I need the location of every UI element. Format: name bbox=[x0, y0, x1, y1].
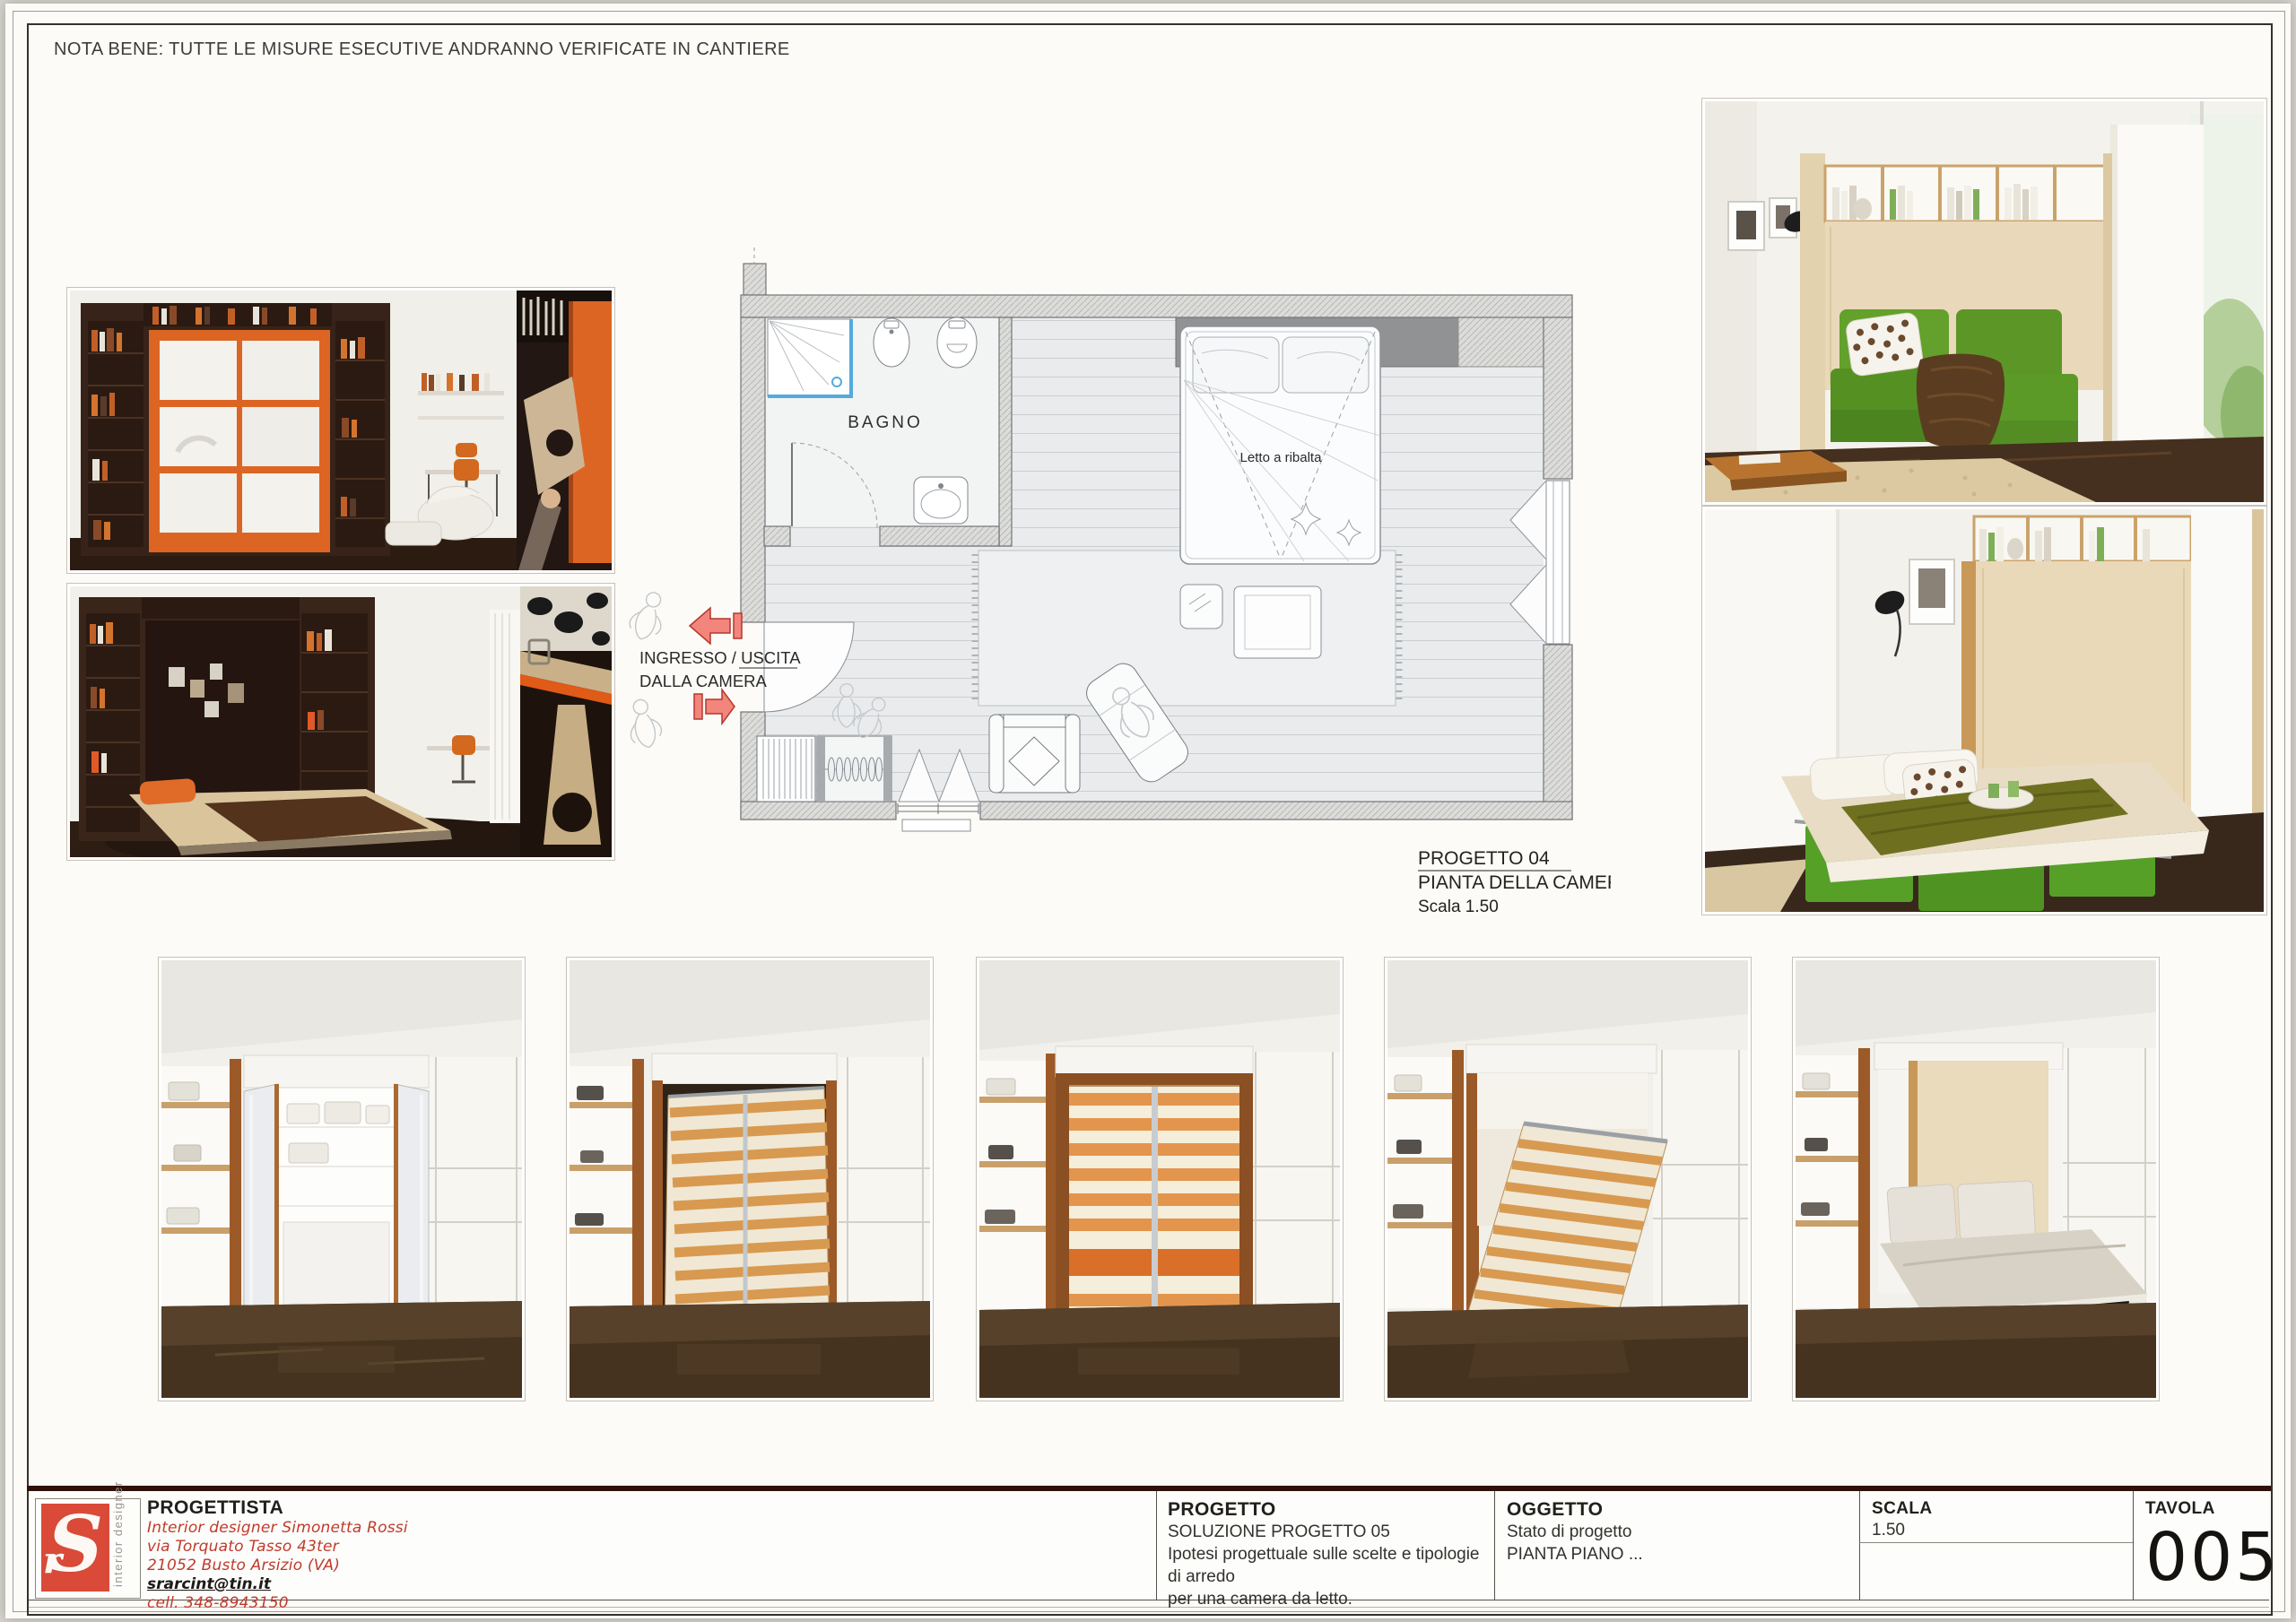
photo-bookcase-orange-door-art bbox=[70, 291, 612, 570]
open-bed-green-base bbox=[1781, 749, 2209, 911]
progettista-label: PROGETTISTA bbox=[147, 1497, 1134, 1519]
scala-cell: SCALA 1.50 bbox=[1872, 1499, 2123, 1541]
coffee-table bbox=[1234, 586, 1321, 658]
drawing-sheet-scan: NOTA BENE: TUTTE LE MISURE ESECUTIVE AND… bbox=[0, 0, 2296, 1622]
progettista-email: srarcint@tin.it bbox=[147, 1575, 1134, 1594]
left-shelf-unit bbox=[1796, 1048, 1870, 1315]
photo-wall-bed-open-brown-art bbox=[70, 586, 612, 857]
progetto-line1: SOLUZIONE PROGETTO 05 bbox=[1168, 1521, 1482, 1543]
wall-chunk bbox=[1458, 317, 1544, 367]
caption-line1: PROGETTO 04 bbox=[1418, 848, 1550, 869]
photo-green-bed-art bbox=[1705, 509, 2264, 912]
titleblock-divider-1 bbox=[1156, 1491, 1157, 1600]
progetto-line2: Ipotesi progettuale sulle scelte e tipol… bbox=[1168, 1543, 1482, 1588]
photo-seq-5-art bbox=[1796, 960, 2156, 1398]
left-shelf-unit bbox=[1387, 1050, 1464, 1315]
entry-label-line1: INGRESSO / USCITA bbox=[639, 648, 801, 667]
bagno-label: BAGNO bbox=[848, 413, 923, 432]
scala-label: SCALA bbox=[1872, 1499, 2123, 1519]
progettista-name: Interior designer Simonetta Rossi bbox=[147, 1519, 1134, 1538]
photo-green-sofa-art bbox=[1705, 101, 2264, 502]
tavola-cell: TAVOLA 005 bbox=[2145, 1499, 2271, 1596]
progetto-line3: per una camera da letto. bbox=[1168, 1588, 1482, 1610]
titleblock-divider-2 bbox=[1494, 1491, 1495, 1600]
photo-green-bed-open bbox=[1701, 506, 2267, 915]
photo-seq-1-cabinet-open bbox=[158, 957, 526, 1401]
scala-value: 1.50 bbox=[1872, 1519, 2123, 1541]
right-partition bbox=[839, 1057, 930, 1305]
photo-seq-3-bed-vertical bbox=[976, 957, 1344, 1401]
photo-seq-5-bed-open bbox=[1792, 957, 2160, 1401]
photo-wall-bed-open-brown bbox=[66, 583, 615, 861]
photo-seq-4-bed-angled bbox=[1384, 957, 1752, 1401]
orange-sliding-door bbox=[149, 330, 330, 552]
titleblock-divider-3 bbox=[1859, 1491, 1860, 1600]
photo-bookcase-orange-door bbox=[66, 287, 615, 574]
oggetto-line1: Stato di progetto bbox=[1507, 1521, 1848, 1543]
logo-tagline: interior designer bbox=[111, 1480, 125, 1587]
bathroom-shower bbox=[768, 319, 851, 396]
left-shelf-unit bbox=[161, 1059, 241, 1315]
right-partition bbox=[1653, 1050, 1748, 1308]
photo-seq-2-bed-tilting bbox=[566, 957, 934, 1401]
arrow-out-icon bbox=[706, 690, 735, 724]
bed-label: Letto a ribalta bbox=[1240, 450, 1323, 465]
titleblock-divider-4 bbox=[2133, 1491, 2134, 1600]
logo-monogram-r: r bbox=[43, 1540, 62, 1582]
designer-logo: S r interior designer bbox=[35, 1498, 141, 1599]
caption-line2: PIANTA DELLA CAMERA bbox=[1418, 872, 1611, 893]
bathroom-wc bbox=[937, 317, 977, 368]
drawing-sheet: NOTA BENE: TUTTE LE MISURE ESECUTIVE AND… bbox=[5, 4, 2291, 1618]
progetto-label: PROGETTO bbox=[1168, 1499, 1482, 1521]
radiator bbox=[757, 736, 815, 802]
general-note: NOTA BENE: TUTTE LE MISURE ESECUTIVE AND… bbox=[54, 39, 790, 60]
left-shelf-unit bbox=[570, 1059, 644, 1315]
polka-dot-pillow bbox=[1845, 312, 1924, 377]
oggetto-label: OGGETTO bbox=[1507, 1499, 1848, 1521]
progettista-city: 21052 Busto Arsizio (VA) bbox=[147, 1557, 1134, 1575]
caption-line3: Scala 1.50 bbox=[1418, 898, 1499, 916]
progettista-phone: cell. 348-8943150 bbox=[147, 1594, 1134, 1613]
photo-seq-2-art bbox=[570, 960, 930, 1398]
oggetto-line2: PIANTA PIANO ... bbox=[1507, 1543, 1848, 1566]
plan-caption: PROGETTO 04 PIANTA DELLA CAMERA Scala 1.… bbox=[1418, 848, 1611, 916]
bathroom-sink bbox=[914, 477, 968, 524]
right-partition bbox=[427, 1057, 522, 1305]
photo-seq-1-art bbox=[161, 960, 522, 1398]
floor-plan: Letto a ribalta bbox=[544, 246, 1611, 918]
progettista-cell: PROGETTISTA Interior designer Simonetta … bbox=[147, 1497, 1134, 1613]
vertical-bed-slats bbox=[1056, 1046, 1253, 1348]
progetto-cell: PROGETTO SOLUZIONE PROGETTO 05 Ipotesi p… bbox=[1168, 1499, 1482, 1610]
wardrobe-hangers bbox=[817, 736, 891, 802]
scala-cell-divider bbox=[1859, 1542, 2133, 1543]
logo-red-square: S r bbox=[41, 1504, 109, 1592]
armchair bbox=[989, 715, 1080, 793]
photo-green-sofa-bed-closed bbox=[1701, 98, 2267, 506]
bathroom-bidet bbox=[874, 318, 909, 367]
entry-label-line2: DALLA CAMERA bbox=[639, 672, 768, 690]
right-partition bbox=[1247, 1052, 1340, 1306]
photo-seq-4-art bbox=[1387, 960, 1748, 1398]
tavola-label: TAVOLA bbox=[2145, 1499, 2271, 1519]
left-shelf-unit bbox=[979, 1054, 1057, 1317]
open-niche bbox=[145, 620, 300, 800]
arrow-in-icon bbox=[690, 608, 730, 644]
fold-down-bed: Letto a ribalta bbox=[1180, 326, 1380, 564]
tavola-number: 005 bbox=[2145, 1519, 2271, 1596]
photo-seq-3-art bbox=[979, 960, 1340, 1398]
progettista-street: via Torquato Tasso 43ter bbox=[147, 1538, 1134, 1557]
oggetto-cell: OGGETTO Stato di progetto PIANTA PIANO .… bbox=[1507, 1499, 1848, 1566]
pouf bbox=[1180, 585, 1222, 629]
